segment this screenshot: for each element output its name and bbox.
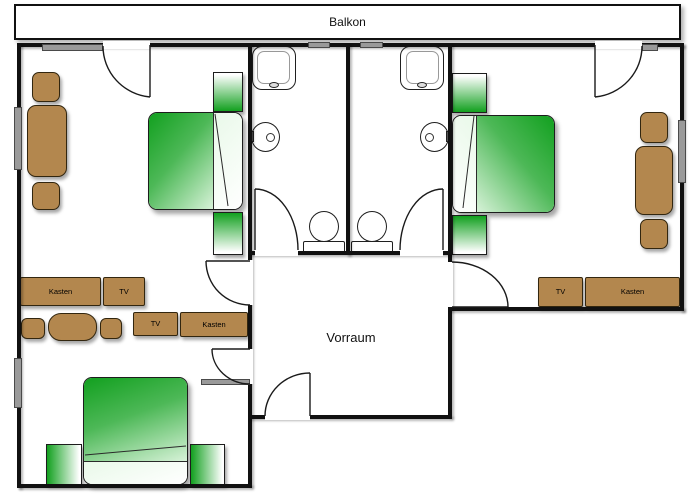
armchair <box>640 219 668 249</box>
shower-faucet-icon <box>269 82 279 88</box>
door-arc <box>255 189 298 250</box>
balcony-label: Balkon <box>329 15 366 29</box>
door-threshold-lowerleft <box>201 379 250 385</box>
doorway-balcony-left <box>103 41 150 49</box>
nightstand <box>46 444 82 485</box>
kasten-label: Kasten <box>621 288 644 296</box>
door-arc <box>400 189 443 250</box>
tv-label: TV <box>556 288 566 296</box>
shower-inner <box>257 51 290 84</box>
tv-label: TV <box>119 288 129 296</box>
toilet-bowl <box>357 211 387 242</box>
tv-cabinet: TV <box>133 312 178 336</box>
window-right <box>678 120 686 183</box>
tv-cabinet: TV <box>538 277 583 307</box>
sink-drain <box>425 133 434 142</box>
wall-right-room-bottom <box>448 307 684 311</box>
doorway-bathroom-left <box>255 250 298 256</box>
bed-pillow <box>84 461 187 484</box>
bed-pillow <box>453 116 477 212</box>
bed-blanket <box>149 113 213 209</box>
sink-drain <box>266 133 275 142</box>
doorway-vorraum-right-room <box>447 262 453 307</box>
closet-kasten: Kasten <box>585 277 680 307</box>
armchair <box>640 112 668 143</box>
sofa <box>27 105 67 177</box>
balcony-door-sill-right <box>642 44 658 51</box>
armchair <box>32 72 60 102</box>
nightstand <box>213 72 243 112</box>
tv-cabinet: TV <box>103 277 145 306</box>
floor-plan: Balkon Kasten TV TV Kasten TV <box>0 0 700 500</box>
door-arc <box>265 373 310 416</box>
sofa <box>635 146 673 215</box>
doorway-balcony-right <box>595 41 642 49</box>
bed-blanket <box>477 116 554 212</box>
door-arc <box>103 46 150 97</box>
doorway-bathroom-right <box>400 250 443 256</box>
door-arc <box>452 262 508 307</box>
table <box>48 313 97 341</box>
chair <box>21 318 45 339</box>
armchair <box>32 182 60 210</box>
closet-kasten: Kasten <box>20 277 101 306</box>
shower-faucet-icon <box>417 82 427 88</box>
balcony-door-sill-left <box>42 44 103 51</box>
doorway-entrance <box>265 414 310 420</box>
nightstand <box>213 212 243 255</box>
nightstand <box>452 215 487 255</box>
window-left-lower <box>14 358 22 408</box>
kasten-label: Kasten <box>49 288 72 296</box>
shower-tray <box>400 46 444 90</box>
window-left-upper <box>14 107 22 170</box>
balcony-area: Balkon <box>14 4 681 40</box>
bathroom-vent-right <box>360 42 383 48</box>
bathroom-vent-left <box>308 42 330 48</box>
nightstand <box>452 73 487 113</box>
wall-bottom-left <box>17 484 252 488</box>
vorraum-label-text: Vorraum <box>326 330 375 345</box>
toilet-bowl <box>309 211 339 242</box>
bed-pillow <box>213 113 242 209</box>
bed-blanket <box>84 378 187 461</box>
kasten-label: Kasten <box>202 321 225 329</box>
double-bed <box>148 112 243 210</box>
door-arc <box>206 261 250 305</box>
doorway-upperleft-vorraum <box>247 260 253 305</box>
shower-tray <box>252 46 296 90</box>
double-bed <box>452 115 555 213</box>
door-arc <box>595 46 642 97</box>
wall-right-mid-vertical <box>448 43 452 417</box>
closet-kasten: Kasten <box>180 312 248 337</box>
tv-label: TV <box>151 320 161 328</box>
nightstand <box>190 444 225 485</box>
chair <box>100 318 122 339</box>
wall-bathroom-divider <box>346 43 350 255</box>
vorraum-label: Vorraum <box>300 330 402 345</box>
shower-inner <box>406 51 439 84</box>
double-bed <box>83 377 188 485</box>
